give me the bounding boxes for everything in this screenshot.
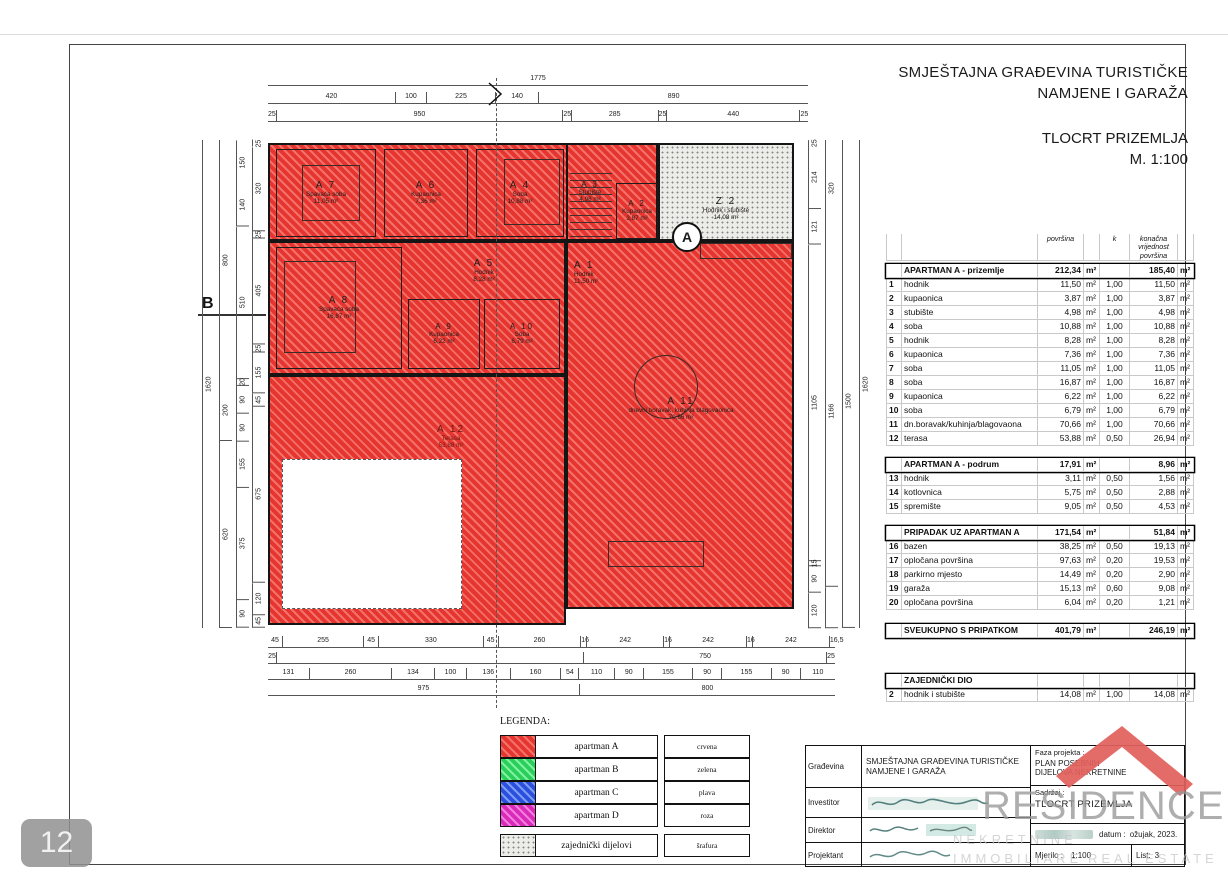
table-cell: m²: [1084, 306, 1100, 320]
table-cell: 1,56: [1130, 472, 1178, 486]
title-block: Građevina SMJEŠTAJNA GRAĐEVINA TURISTIČK…: [805, 745, 1185, 867]
dimension-value: 242: [752, 636, 829, 648]
table-cell: m²: [1084, 568, 1100, 582]
table-cell: m²: [1084, 486, 1100, 500]
table-cell: [1038, 674, 1084, 688]
table-cell: m²: [1178, 554, 1194, 568]
table-cell: m²: [1084, 320, 1100, 334]
room-name: dnevni boravak, kuhinja blagovaonica: [628, 407, 733, 414]
datum-cell: datum : ožujak, 2023.: [1031, 824, 1184, 844]
dimension-value: 975: [268, 684, 579, 696]
table-cell: m²: [1178, 568, 1194, 582]
table-cell: površina: [1038, 234, 1084, 261]
table-cell: 53,88: [1038, 432, 1084, 446]
dimension-value: 1105: [808, 245, 821, 561]
legend-color-name: plava: [664, 781, 750, 804]
room-id: Z 2: [716, 196, 736, 207]
table-row: 7soba11,05m²1,0011,05m²: [886, 362, 1194, 376]
dimension-value: [825, 587, 838, 628]
table-cell: 6,04: [1038, 596, 1084, 610]
faza-value2: DIJELOVA NEKRETNINE: [1035, 768, 1180, 777]
room-area: 11,05 m²: [314, 198, 338, 206]
dimension-value: 90: [236, 414, 249, 442]
table-cell: 6,79: [1038, 404, 1084, 418]
table-cell: m²: [1178, 458, 1194, 472]
table-cell: m²: [1178, 418, 1194, 432]
table-cell: 1: [886, 278, 902, 292]
table-row: PRIPADAK UZ APARTMAN A171,54m²51,84m²: [886, 526, 1194, 540]
area-table: površinakkonačna vrijednost površinaAPAR…: [886, 234, 1194, 702]
table-row: 18parkirno mjesto14,49m²0,202,90m²: [886, 568, 1194, 582]
title-block-left: Građevina SMJEŠTAJNA GRAĐEVINA TURISTIČK…: [806, 746, 1031, 866]
table-cell: m²: [1178, 540, 1194, 554]
dimension-column: 2521412111051590120: [808, 140, 821, 628]
dimension-value: 1620: [202, 140, 215, 628]
table-cell: konačna vrijednost površina: [1130, 234, 1178, 261]
faza-label: Faza projekta :: [1035, 748, 1180, 757]
table-row: 19garaža15,13m²0,609,08m²: [886, 582, 1194, 596]
room-a8: A 8Spavaća soba16,87 m²: [276, 247, 402, 369]
dimension-row: 25950252852544025: [268, 110, 808, 122]
room-id: A 7: [316, 180, 336, 191]
table-cell: 1,21: [1130, 596, 1178, 610]
legend-label: zajednički dijelovi: [536, 834, 658, 857]
dimension-value: 20: [236, 379, 249, 386]
legend-color-name: crvena: [664, 735, 750, 758]
dimension-value: 54: [560, 668, 578, 680]
title-block-row-gradevina: Građevina SMJEŠTAJNA GRAĐEVINA TURISTIČK…: [806, 746, 1030, 788]
table-cell: 20: [886, 596, 902, 610]
dimension-value: 121: [808, 209, 821, 245]
table-cell: 6,22: [1038, 390, 1084, 404]
table-cell: m²: [1178, 404, 1194, 418]
dimension-value: [276, 652, 583, 664]
table-cell: m²: [1084, 500, 1100, 514]
dimension-value: 45: [268, 636, 282, 648]
title-block-row-direktor: Direktor: [806, 818, 1030, 843]
table-cell: 0,50: [1100, 500, 1130, 514]
table-cell: 0,20: [1100, 596, 1130, 610]
direktor-label: Direktor: [806, 818, 862, 842]
table-cell: kupaonica: [902, 292, 1038, 306]
room-id: A 1: [574, 260, 594, 271]
table-row: 16bazen38,25m²0,5019,13m²: [886, 540, 1194, 554]
legend-swatch-blue-hatch: [500, 781, 536, 804]
table-cell: m²: [1084, 376, 1100, 390]
title-block-row-investitor: Investitor: [806, 788, 1030, 818]
table-cell: 1,00: [1100, 688, 1130, 702]
table-cell: m²: [1178, 306, 1194, 320]
table-cell: m²: [1084, 582, 1100, 596]
table-row: 2hodnik i stubište14,08m²1,0014,08m²: [886, 688, 1194, 702]
dimension-row: 1775: [268, 74, 808, 86]
table-cell: 0,60: [1100, 582, 1130, 596]
room-area: 6,22 m²: [433, 338, 454, 346]
room-a1: A 1Hodnik11,50 m²: [574, 251, 684, 295]
table-cell: 97,63: [1038, 554, 1084, 568]
table-cell: 1,00: [1100, 292, 1130, 306]
table-gap: [886, 514, 1194, 526]
table-row: površinakkonačna vrijednost površina: [886, 234, 1194, 261]
dimension-column: 1620: [859, 140, 872, 628]
dimension-value: 1166: [825, 236, 838, 587]
table-cell: dn.boravak/kuhinja/blagovaona: [902, 418, 1038, 432]
table-cell: 1,00: [1100, 334, 1130, 348]
room-name: Terasa: [442, 435, 461, 442]
table-cell: 10,88: [1130, 320, 1178, 334]
table-cell: 0,50: [1100, 432, 1130, 446]
table-cell: m²: [1084, 348, 1100, 362]
table-cell: 9: [886, 390, 902, 404]
table-row: 5hodnik8,28m²1,008,28m²: [886, 334, 1194, 348]
table-cell: 185,40: [1130, 264, 1178, 278]
table-cell: 6,22: [1130, 390, 1178, 404]
table-cell: m²: [1178, 376, 1194, 390]
legend-swatch-green-hatch: [500, 758, 536, 781]
table-cell: 1,00: [1100, 348, 1130, 362]
table-cell: hodnik i stubište: [902, 688, 1038, 702]
investitor-label: Investitor: [806, 788, 862, 817]
drawing-title-line1: SMJEŠTAJNA GRAĐEVINA TURISTIČKE: [760, 62, 1188, 83]
drawing-title: SMJEŠTAJNA GRAĐEVINA TURISTIČKE NAMJENE …: [760, 62, 1188, 104]
table-row: SVEUKUPNO S PRIPATKOM401,79m²246,19m²: [886, 624, 1194, 638]
table-cell: 1,00: [1100, 404, 1130, 418]
table-cell: 15,13: [1038, 582, 1084, 596]
table-cell: opločana površina: [902, 596, 1038, 610]
table-cell: 17,91: [1038, 458, 1084, 472]
table-cell: 8,28: [1130, 334, 1178, 348]
table-cell: hodnik: [902, 278, 1038, 292]
legend-color-name: šrafura: [664, 834, 750, 857]
table-cell: 15: [886, 500, 902, 514]
table-cell: soba: [902, 404, 1038, 418]
table-row: 6kupaonica7,36m²1,007,36m²: [886, 348, 1194, 362]
table-row: ZAJEDNIČKI DIO: [886, 674, 1194, 688]
dimension-value: 25: [799, 110, 808, 122]
dimension-row: 420100225140890: [268, 92, 808, 104]
dimension-value: 242: [586, 636, 663, 648]
dimension-value: 950: [276, 110, 563, 122]
room-id: A 4: [510, 180, 530, 191]
dimension-column: 3201166: [825, 140, 838, 628]
table-cell: spremište: [902, 500, 1038, 514]
table-cell: m²: [1084, 624, 1100, 638]
axis-flag-icon: [488, 82, 503, 106]
table-cell: garaža: [902, 582, 1038, 596]
legend-label: apartman D: [536, 804, 658, 827]
table-cell: 246,19: [1130, 624, 1178, 638]
dimension-value: 260: [309, 668, 391, 680]
table-cell: 6,79: [1130, 404, 1178, 418]
dimension-value: 140: [236, 184, 249, 226]
table-cell: 2,88: [1130, 486, 1178, 500]
table-cell: kupaonica: [902, 390, 1038, 404]
dimension-value: 225: [426, 92, 495, 104]
dimension-value: 800: [219, 140, 232, 380]
table-cell: 7: [886, 362, 902, 376]
room-a12: A 12Terasa53,88 m²: [408, 415, 494, 459]
projektant-signature: [862, 843, 1030, 867]
room-a11: A 11dnevni boravak, kuhinja blagovaonica…: [586, 381, 776, 437]
dimension-value: 25: [268, 110, 276, 122]
legend-label: apartman A: [536, 735, 658, 758]
table-cell: 38,25: [1038, 540, 1084, 554]
dimension-value: 25: [826, 652, 835, 664]
table-cell: m²: [1084, 264, 1100, 278]
table-cell: bazen: [902, 540, 1038, 554]
dimension-value: 90: [236, 386, 249, 414]
room-area: 16,87 m²: [327, 313, 352, 321]
room-name: Stubište: [579, 189, 602, 196]
dimension-value: 155: [721, 668, 770, 680]
table-cell: 3,11: [1038, 472, 1084, 486]
table-gap: [886, 446, 1194, 458]
table-cell: 1,00: [1100, 390, 1130, 404]
dimension-row: 45255453304526016242162421624216,5: [268, 636, 835, 648]
table-row: 14kotlovnica5,75m²0,502,88m²: [886, 486, 1194, 500]
gradevina-label: Građevina: [806, 746, 862, 787]
table-cell: 8,28: [1038, 334, 1084, 348]
dimension-value: 45: [252, 615, 265, 628]
room-a6: A 6Kupaonica7,36 m²: [384, 149, 468, 237]
table-gap: [886, 610, 1194, 624]
room-area: 4,98 m²: [579, 196, 600, 204]
table-cell: 5: [886, 334, 902, 348]
table-cell: 3,87: [1038, 292, 1084, 306]
table-row: 13hodnik3,11m²0,501,56m²: [886, 472, 1194, 486]
table-cell: m²: [1084, 458, 1100, 472]
mjerilo-cell: Mjerilo : 1:100: [1031, 845, 1132, 866]
kitchen-counter-outline: [700, 243, 792, 259]
dimension-value: 320: [252, 147, 265, 231]
dimension-value: 160: [510, 668, 561, 680]
table-row: 15spremište9,05m²0,504,53m²: [886, 500, 1194, 514]
table-cell: [886, 624, 902, 638]
table-row: 10soba6,79m²1,006,79m²: [886, 404, 1194, 418]
legend-rows: apartman Acrvenaapartman Bzelenaapartman…: [500, 735, 750, 857]
table-cell: m²: [1084, 278, 1100, 292]
table-cell: m²: [1178, 472, 1194, 486]
dimension-column: 15014051020909015537590: [236, 140, 249, 628]
dimension-value: 200: [219, 380, 232, 441]
title-block-row-projektant: Projektant: [806, 843, 1030, 867]
dimension-value: 100: [434, 668, 466, 680]
title-block-datum-row: datum : ožujak, 2023.: [1031, 824, 1184, 845]
table-cell: [1084, 674, 1100, 688]
sadrzaj-label: Sadržaj :: [1035, 788, 1180, 797]
dimension-value: 155: [252, 352, 265, 393]
table-cell: m²: [1178, 596, 1194, 610]
table-cell: 51,84: [1130, 526, 1178, 540]
table-cell: m²: [1084, 688, 1100, 702]
table-cell: PRIPADAK UZ APARTMAN A: [902, 526, 1038, 540]
redacted-text: [1035, 830, 1093, 839]
dimension-value: 1775: [268, 74, 808, 86]
table-row: 11dn.boravak/kuhinja/blagovaona70,66m²1,…: [886, 418, 1194, 432]
room-name: Kupaonica: [429, 331, 459, 338]
dimension-value: 620: [219, 441, 232, 628]
table-cell: 5,75: [1038, 486, 1084, 500]
room-name: Hodnik: [574, 271, 594, 278]
room-name: Spavaća soba: [319, 306, 359, 313]
table-cell: m²: [1178, 334, 1194, 348]
table-row: 17opločana površina97,63m²0,2019,53m²: [886, 554, 1194, 568]
table-cell: soba: [902, 362, 1038, 376]
table-cell: 17: [886, 554, 902, 568]
room-area: 6,79 m²: [511, 338, 532, 346]
room-area: 7,36 m²: [415, 198, 436, 206]
table-cell: kotlovnica: [902, 486, 1038, 500]
dimension-row: 975800: [268, 684, 835, 696]
table-cell: m²: [1084, 418, 1100, 432]
table-cell: soba: [902, 376, 1038, 390]
legend-label: apartman C: [536, 781, 658, 804]
room-name: Hodnik i stubište: [703, 207, 749, 214]
dimension-value: 25: [252, 140, 265, 147]
room-area: 8,28 m²: [473, 276, 494, 284]
room-id: A 3: [581, 180, 599, 189]
table-cell: 12: [886, 432, 902, 446]
dimension-value: 675: [252, 406, 265, 583]
dimension-value: 90: [771, 668, 800, 680]
table-cell: [1100, 264, 1130, 278]
table-cell: [886, 264, 902, 278]
datum-value: ožujak, 2023.: [1130, 830, 1178, 839]
table-row: 9kupaonica6,22m²1,006,22m²: [886, 390, 1194, 404]
table-cell: 0,50: [1100, 486, 1130, 500]
table-cell: m²: [1084, 526, 1100, 540]
table-cell: k: [1100, 234, 1130, 261]
room-name: Soba: [515, 331, 530, 338]
table-cell: APARTMAN A - prizemlje: [902, 264, 1038, 278]
dimension-value: 120: [808, 593, 821, 628]
table-cell: 1,00: [1100, 306, 1130, 320]
dimension-value: 890: [538, 92, 808, 104]
dimension-value: 405: [252, 238, 265, 344]
legend-color-name: zelena: [664, 758, 750, 781]
top-divider: [0, 34, 1228, 35]
dimension-value: 90: [808, 566, 821, 593]
table-cell: 2: [886, 688, 902, 702]
signature-scribble-icon: [866, 794, 996, 812]
table-cell: [1100, 674, 1130, 688]
room-a5: A 5Hodnik8,28 m²: [408, 247, 560, 295]
table-cell: opločana površina: [902, 554, 1038, 568]
table-cell: m²: [1178, 582, 1194, 596]
table-cell: kupaonica: [902, 348, 1038, 362]
table-cell: 212,34: [1038, 264, 1084, 278]
dimension-value: 150: [236, 140, 249, 184]
legend-swatch-magenta-hatch: [500, 804, 536, 827]
table-cell: 18: [886, 568, 902, 582]
table-cell: [886, 458, 902, 472]
title-block-right: Faza projekta : PLAN POSEBNIH DIJELOVA N…: [1031, 746, 1184, 866]
table-cell: terasa: [902, 432, 1038, 446]
list-label: List:: [1136, 851, 1151, 860]
table-cell: [902, 234, 1038, 261]
legend-row: zajednički dijelovišrafura: [500, 834, 750, 857]
table-cell: SVEUKUPNO S PRIPATKOM: [902, 624, 1038, 638]
dimension-value: 90: [236, 600, 249, 628]
drawing-title-line2: NAMJENE I GARAŽA: [760, 83, 1188, 104]
center-axis-line: [496, 78, 497, 708]
legend-color-name: roza: [664, 804, 750, 827]
direktor-signature: [862, 818, 1030, 842]
table-row: APARTMAN A - prizemlje212,34m²185,40m²: [886, 264, 1194, 278]
room-a2: A 2Kupaonica3,87 m²: [616, 183, 658, 239]
table-cell: 0,20: [1100, 554, 1130, 568]
table-cell: m²: [1084, 334, 1100, 348]
room-area: 14,08 m²: [714, 214, 739, 222]
mjerilo-value: 1:100: [1071, 851, 1091, 860]
table-cell: parkirno mjesto: [902, 568, 1038, 582]
table-cell: m²: [1178, 390, 1194, 404]
table-cell: m²: [1084, 404, 1100, 418]
table-cell: 8: [886, 376, 902, 390]
table-cell: 3: [886, 306, 902, 320]
room-a9: A 9Kupaonica6,22 m²: [408, 299, 480, 369]
table-cell: 14,08: [1038, 688, 1084, 702]
table-cell: 9,08: [1130, 582, 1178, 596]
title-block-scale-row: Mjerilo : 1:100 List: 3: [1031, 845, 1184, 866]
dimension-value: 440: [666, 110, 799, 122]
table-cell: 19,13: [1130, 540, 1178, 554]
room-name: Spavaća soba: [306, 191, 346, 198]
dimension-value: 800: [579, 684, 835, 696]
table-cell: 14,08: [1130, 688, 1178, 702]
table-cell: m²: [1178, 348, 1194, 362]
table-cell: m²: [1178, 292, 1194, 306]
table-cell: m²: [1178, 500, 1194, 514]
sofa-outline: [608, 541, 704, 567]
dimension-column: 2532025405251554567512045: [252, 140, 265, 628]
dimension-column: 800200620: [219, 140, 232, 628]
table-cell: [1130, 674, 1178, 688]
table-row: 12terasa53,88m²0,5026,94m²: [886, 432, 1194, 446]
legend-swatch-stipple: [500, 834, 536, 857]
faza-value1: PLAN POSEBNIH: [1035, 759, 1180, 768]
table-cell: [1084, 234, 1100, 261]
table-cell: 8,96: [1130, 458, 1178, 472]
room-id: A 5: [474, 258, 494, 269]
list-cell: List: 3: [1132, 845, 1184, 866]
table-cell: 1,00: [1100, 376, 1130, 390]
dimension-value: 134: [391, 668, 434, 680]
dimension-value: 330: [378, 636, 482, 648]
table-cell: 0,50: [1100, 472, 1130, 486]
table-cell: 0,50: [1100, 540, 1130, 554]
room-area: 10,88 m²: [508, 198, 533, 206]
dimension-value: 375: [236, 488, 249, 600]
sadrzaj-value: TLOCRT PRIZEMLJA: [1035, 799, 1180, 810]
table-cell: [1100, 624, 1130, 638]
dimension-value: 25: [562, 110, 571, 122]
table-cell: m²: [1084, 472, 1100, 486]
dimension-value: [842, 140, 855, 176]
table-row: 4soba10,88m²1,0010,88m²: [886, 320, 1194, 334]
table-cell: 14: [886, 486, 902, 500]
room-id: A 10: [510, 322, 534, 331]
photo-count-badge: 12: [21, 819, 92, 867]
table-cell: m²: [1084, 432, 1100, 446]
dimension-value: 136: [466, 668, 509, 680]
table-cell: m²: [1178, 362, 1194, 376]
room-name: Kupaonica: [622, 208, 652, 215]
room-name: Soba: [513, 191, 528, 198]
table-cell: 19: [886, 582, 902, 596]
table-cell: [1100, 458, 1130, 472]
table-cell: 2: [886, 292, 902, 306]
